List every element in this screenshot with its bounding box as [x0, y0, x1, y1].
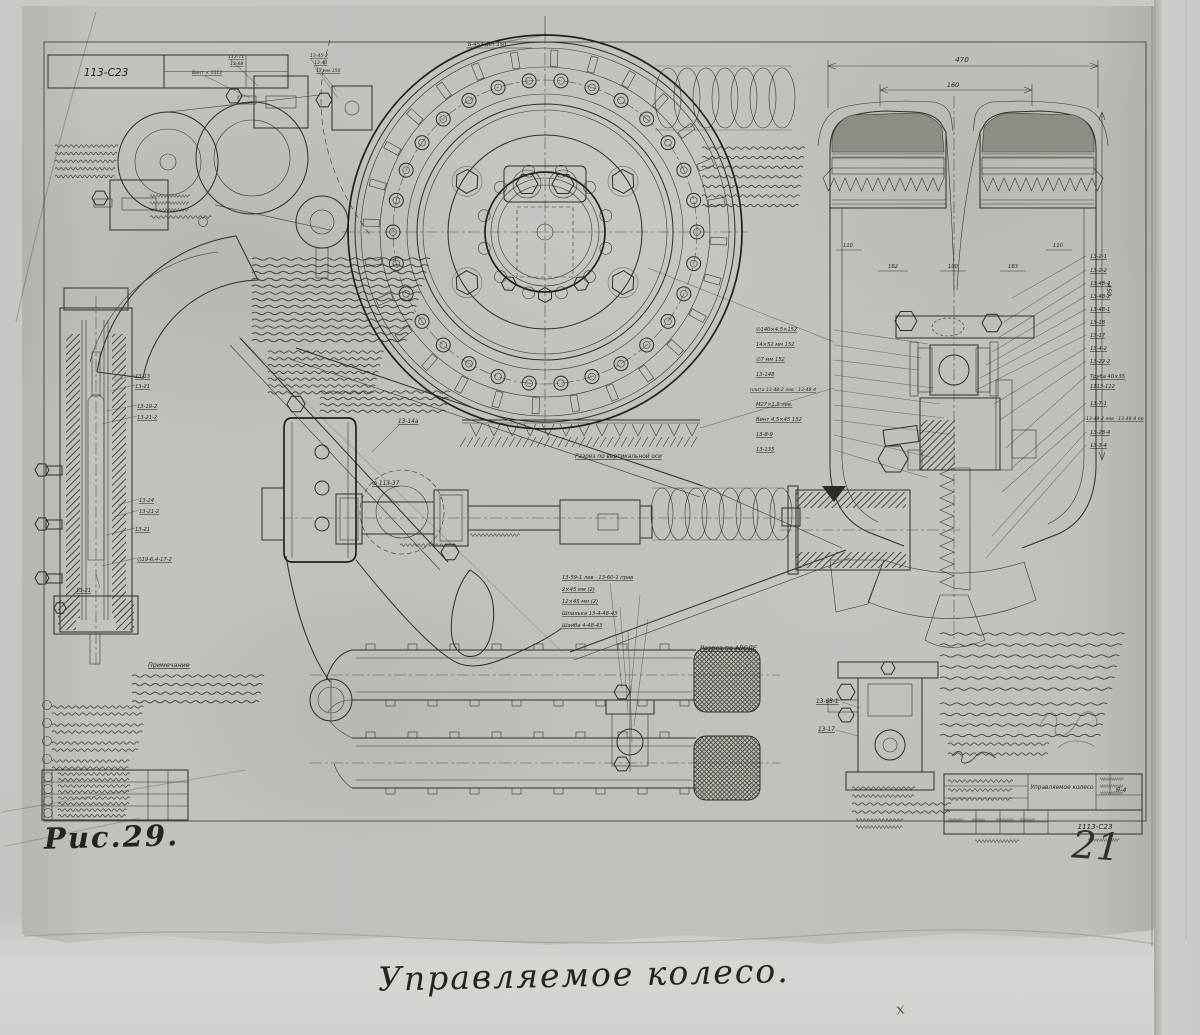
part-callout: 13-8-9 [756, 432, 773, 438]
part-callout: 13-21 [76, 588, 91, 594]
part-callout: 13-45-2 [310, 53, 328, 59]
part-callout: Шпилька 13-4-48-43 [562, 611, 617, 617]
dim-470 [828, 60, 1098, 108]
part-callout: 14×52 мм 152 [756, 342, 795, 348]
tire-block-lower [694, 736, 760, 800]
part-callout: 13-22-2 [1090, 359, 1110, 365]
part-callout: 13-17 [1090, 333, 1106, 339]
part-callout: 13-21 [135, 384, 150, 390]
fork-side-view [310, 644, 780, 800]
part-callout: М27×1,5 лев. [756, 402, 793, 408]
drawing-artwork: 113-С23 Б-453 дет 150 470 160 450 110 16… [0, 0, 1200, 1035]
dim-470-value: 470 [955, 55, 969, 64]
part-callout: 13-148 [756, 372, 775, 378]
part-callout: ∅140×4,5×152 [756, 327, 797, 333]
part-callout: Винт × 1312 [192, 70, 222, 76]
part-callout: 13-13 [135, 374, 150, 380]
part-callout: 2×45 мм (2) [562, 587, 595, 593]
detail-part-1: 13-68-1 [816, 699, 839, 705]
dim-row-0: 110 [843, 243, 854, 249]
notes-title: Примечание [148, 661, 190, 669]
part-callout: 13-2-2 [1090, 268, 1107, 274]
part-callout: 13-7-1 [1090, 401, 1107, 407]
tie-rod-bands [230, 338, 850, 660]
strut-vertical-section [46, 288, 138, 664]
dim-row-4: 110 [1053, 243, 1064, 249]
top-note: Б-453 дет 150 [468, 42, 507, 48]
axle-tube [780, 486, 960, 574]
page-number: 21 [1071, 822, 1122, 869]
hub-bearing-assembly [883, 316, 1036, 648]
rail-rivet-tabs [366, 644, 689, 794]
part-callout: Шайба 4-48-43 [562, 623, 602, 629]
part-callout: ∅19-6,4-17-2 [137, 557, 172, 563]
part-callout: 13-48-1 [1090, 307, 1110, 313]
part-callout: 13-135 [756, 447, 775, 453]
page-caption: Управляемое колесо. [378, 952, 725, 998]
part-callout: 13-68 [230, 61, 243, 67]
section-label-abcde: Разрез по АВСДЕ [700, 644, 758, 652]
part-callout: 113-71 [228, 54, 244, 60]
steering-knuckle-view [262, 418, 810, 682]
scanned-blueprint-page: 113-С23 Б-453 дет 150 470 160 450 110 16… [0, 0, 1200, 1035]
doc-number: 113-С23 [84, 67, 129, 79]
part-callout: Винт 4,5×45 152 [756, 417, 802, 423]
part-callout: 13-21 [135, 527, 150, 533]
part-callout: 13-48-2 лев · 13-48-4 пр [1086, 416, 1144, 422]
dim-row-3: 163 [1008, 264, 1018, 270]
part-callout: 13-48-4 [1090, 281, 1110, 287]
section-label-vertical: Разрез по вертикальной оси [575, 454, 662, 460]
bracket-detail-view [828, 662, 938, 790]
part-callout: 13-59-1 лев · 13-60-1 прав [562, 575, 633, 581]
part-callout: 13-18 [1090, 320, 1106, 326]
part-callout: 13-21-2 [139, 509, 159, 515]
part-callout: Труба 40×35 [1090, 374, 1126, 380]
knuckle-dia-label: ∅ 113-37 [372, 480, 400, 487]
part-callout: 13-43 [314, 60, 327, 66]
part-callout: 13-24 [139, 498, 154, 504]
wheel-front-view [342, 16, 748, 432]
revision-table [42, 770, 188, 820]
knuckle-part-label: 13-14а [398, 419, 419, 425]
tire-block-upper [694, 648, 760, 712]
part-callout: 13-48-2 [1090, 294, 1110, 300]
title-block [944, 712, 1142, 834]
part-callout: 17 мм 150 [316, 68, 341, 74]
part-callout: ∅7 мм 152 [756, 357, 785, 363]
dim-row-2: 100 [948, 264, 959, 270]
part-callout: 13-19-2 [137, 404, 157, 410]
part-callout: 12×45 мм (2) [562, 599, 598, 605]
part-callout: плита 13-48-2 лев · 13-48-4 [750, 387, 816, 393]
coil-spring-detail [655, 66, 795, 130]
pencil-creases [2, 12, 1154, 944]
part-callout: 13-28-4 [1090, 430, 1110, 436]
wheel-cross-section-view [780, 60, 1108, 648]
clamp-detail-c [332, 86, 372, 130]
dim-160-value: 160 [947, 81, 959, 89]
detail-part-2: 13-17 [818, 727, 835, 733]
ground-section-strip [460, 420, 700, 447]
tire-section-left [818, 101, 953, 208]
figure-label: Рис.29. [44, 818, 180, 856]
part-callout: 1113-112 [1090, 384, 1115, 390]
part-callout: 13-2-1 [1090, 254, 1107, 260]
title-block-group: Я-4 [1115, 786, 1127, 794]
clamp-detail-b [94, 180, 168, 230]
part-callout: 13-3-4 [1090, 443, 1107, 449]
part-callout: 13-4-2 [1090, 346, 1107, 352]
title-block-name: Управляемое колесо [1030, 785, 1094, 791]
dim-row-1: 162 [888, 264, 898, 270]
part-callout: 13-21-2 [137, 415, 157, 421]
